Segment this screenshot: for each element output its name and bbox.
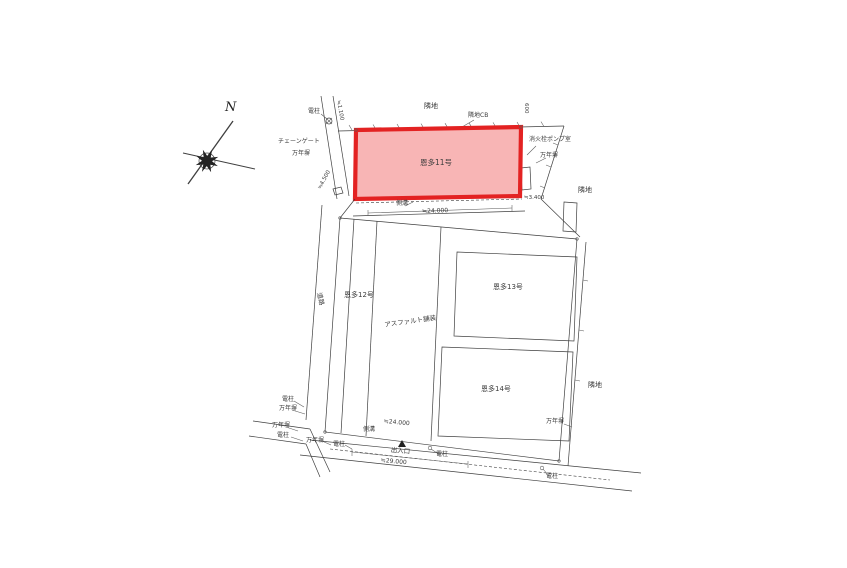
west-road-line	[306, 205, 322, 420]
neighbor-label-east: 隣地	[578, 187, 592, 194]
parcel-13-label: 恩多13号	[493, 284, 523, 291]
compass-rose	[183, 121, 255, 184]
gutter-label-2: 側溝	[363, 427, 375, 433]
concrete-fence-label-2: 万年塀	[540, 153, 558, 159]
neighbor-label-southeast: 隣地	[588, 382, 602, 389]
utility-pole-label-1: 電柱	[308, 109, 320, 115]
parcel-12-label: 恩多12号	[344, 292, 374, 299]
utility-pole-label-2: 電柱	[282, 397, 294, 403]
shed-outline-1	[521, 167, 531, 190]
southwest-intersection	[249, 401, 352, 477]
gate-symbol	[333, 187, 343, 195]
entrance-label: 出入口	[390, 447, 410, 455]
south-road	[300, 440, 641, 491]
concrete-fence-label-5: 万年塀	[272, 423, 290, 429]
chain-gate-label: チェーンゲート	[278, 139, 320, 145]
lower-parcels	[325, 218, 577, 461]
parcel-11-label: 恩多11号	[420, 159, 452, 167]
dimension-upper-width: ≒24.000	[422, 208, 448, 215]
neighbor-cb-label: 隣地CB	[468, 113, 488, 119]
concrete-fence-label-1: 万年塀	[292, 151, 310, 157]
parcel-13-outline	[454, 252, 577, 341]
utility-pole-label-3: 電柱	[277, 433, 289, 439]
concrete-fence-label-6: 万年塀	[306, 438, 324, 444]
site-plan-drawing	[0, 0, 847, 568]
utility-pole-label-6: 電柱	[546, 474, 558, 480]
concrete-fence-label-4: 万年塀	[279, 406, 297, 412]
pump-room-label: 消火栓ポンプ室	[529, 137, 571, 143]
north-label: N	[225, 101, 236, 114]
dimension-east-offset: ≒3.400	[524, 196, 544, 202]
neighbor-label-top: 隣地	[424, 103, 438, 110]
parcel-14-label: 恩多14号	[481, 386, 511, 393]
parcel-14-outline	[438, 347, 573, 441]
utility-pole-label-4: 電柱	[333, 442, 345, 448]
utility-pole-label-5: 電柱	[436, 452, 448, 458]
gutter-label-1: 側溝	[396, 201, 408, 207]
site-plan-page: N 隣地 隣地CB 600 電柱 ≒1.100 チェーンゲート 万年塀 恩多11…	[0, 0, 847, 568]
dimension-top-edge: 600	[523, 103, 529, 114]
road-label: 道路	[316, 292, 325, 306]
concrete-fence-label-3: 万年塀	[546, 419, 564, 425]
